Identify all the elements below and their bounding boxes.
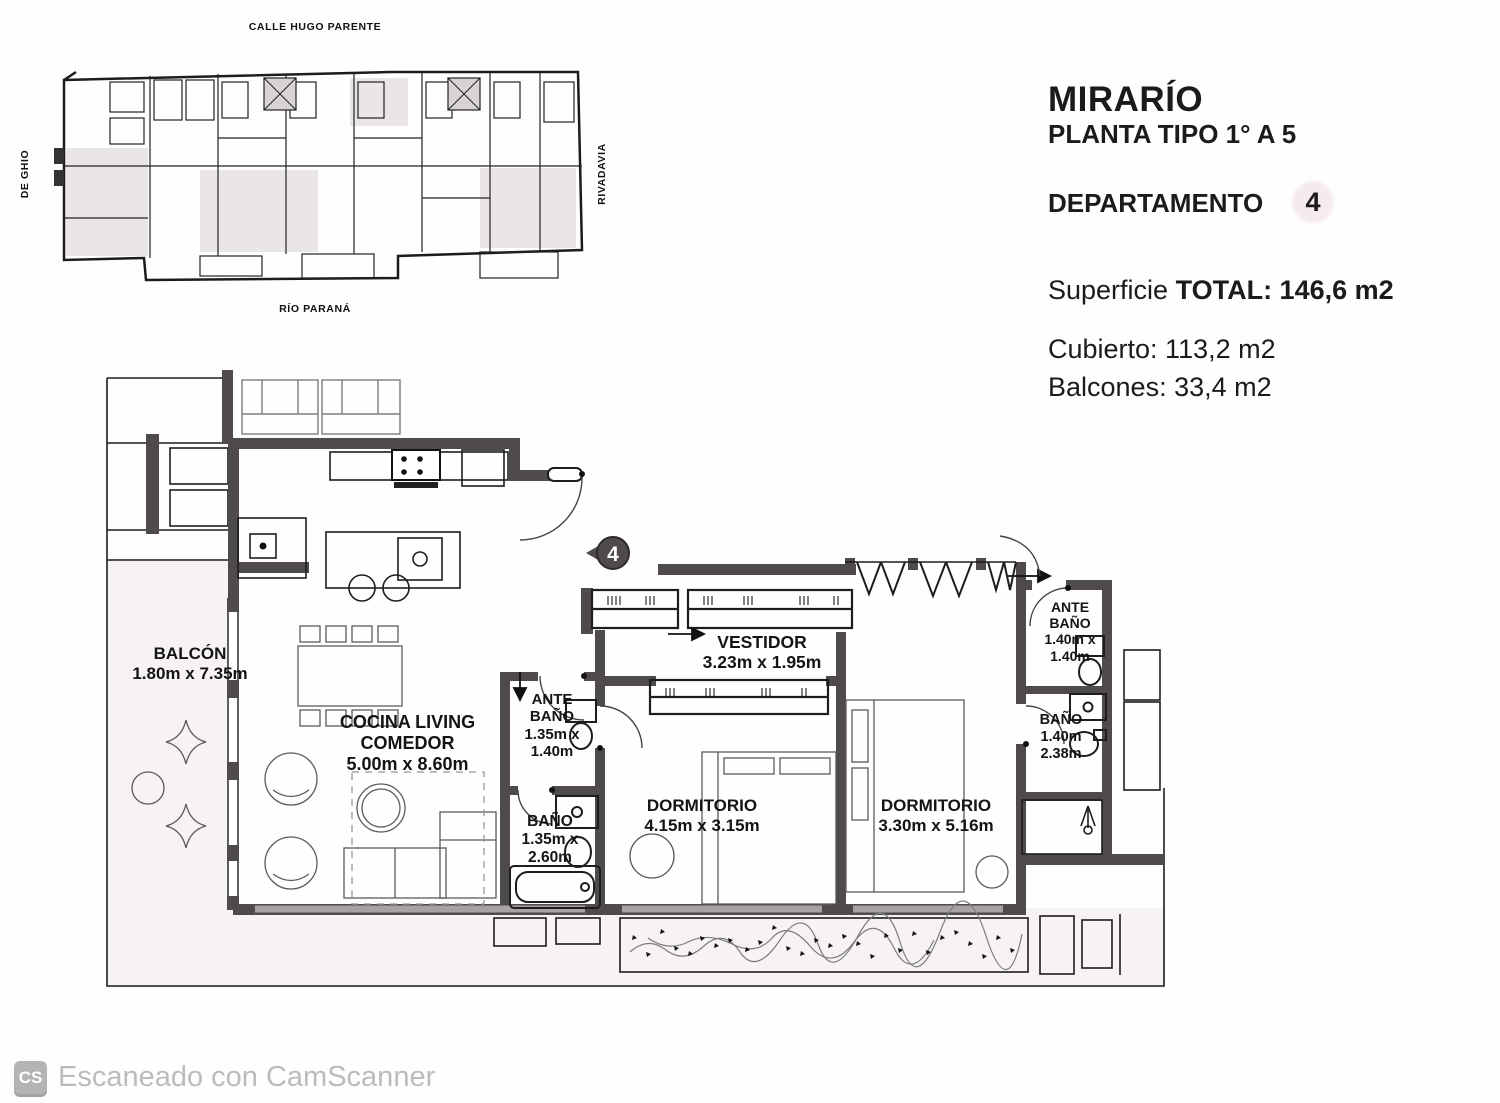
unit-label: DEPARTAMENTO (1048, 188, 1263, 219)
room-name: ANTE (507, 691, 597, 708)
room-name: DORMITORIO (845, 796, 1027, 816)
room-dims: 3.30m x 5.16m (845, 816, 1027, 836)
project-title: MIRARÍO (1048, 80, 1203, 120)
room-dims: 2.60m (505, 849, 595, 867)
room-name: BALCÓN (115, 644, 265, 664)
room-dims: 1.80m x 7.35m (115, 664, 265, 684)
room-dims: 1.40m (1032, 648, 1108, 664)
room-label-ante-bano-1: ANTE BAÑO 1.35m x 1.40m (507, 691, 597, 761)
room-name: ANTE (1032, 599, 1108, 615)
scanned-floor-plan-page: CALLE HUGO PARENTE DE GHIO RIVADAVIA RÍO… (0, 0, 1500, 1103)
area-covered: Cubierto: 113,2 m2 (1048, 334, 1276, 365)
room-dims: 1.40m (507, 743, 597, 760)
street-label-bottom: RÍO PARANÁ (230, 303, 400, 315)
room-name: COMEDOR (310, 733, 505, 754)
room-dims: 1.35m x (507, 726, 597, 743)
room-name: BAÑO (1022, 712, 1100, 729)
site-plan-drawing (50, 18, 650, 333)
room-label-dormitorio-2: DORMITORIO 3.30m x 5.16m (845, 796, 1027, 835)
room-label-dormitorio-1: DORMITORIO 4.15m x 3.15m (612, 796, 792, 835)
room-name: BAÑO (1032, 615, 1108, 631)
camscanner-text: Escaneado con CamScanner (58, 1061, 435, 1094)
room-dims: 3.23m x 1.95m (672, 652, 852, 672)
area-total: Superficie TOTAL: 146,6 m2 (1048, 275, 1394, 306)
area-total-value: TOTAL: 146,6 m2 (1176, 275, 1394, 305)
room-name: DORMITORIO (612, 796, 792, 816)
room-label-balcon: BALCÓN 1.80m x 7.35m (115, 644, 265, 683)
room-label-ante-bano-2: ANTE BAÑO 1.40m x 1.40m (1032, 599, 1108, 664)
unit-number-badge: 4 (1290, 179, 1336, 225)
room-label-vestidor: VESTIDOR 3.23m x 1.95m (672, 632, 852, 673)
room-name: BAÑO (507, 708, 597, 725)
camscanner-watermark: CS Escaneado con CamScanner (14, 1061, 435, 1094)
walls (228, 438, 1164, 915)
room-dims: 1.40m x (1032, 631, 1108, 647)
room-label-bano-2: BAÑO 1.40m 2.38m (1022, 712, 1100, 762)
room-dims: 2.38m (1022, 746, 1100, 763)
street-label-right: RIVADAVIA (596, 119, 608, 229)
room-name: COCINA LIVING (310, 712, 505, 733)
room-label-bano-1: BAÑO 1.35m x 2.60m (505, 813, 595, 867)
room-dims: 5.00m x 8.60m (310, 754, 505, 775)
room-name: VESTIDOR (672, 632, 852, 652)
unit-marker-badge: 4 (586, 537, 629, 569)
street-label-top: CALLE HUGO PARENTE (230, 21, 400, 33)
folding-doors (857, 562, 1016, 596)
room-dims: 1.40m (1022, 729, 1100, 746)
room-label-cocina: COCINA LIVING COMEDOR 5.00m x 8.60m (310, 712, 505, 775)
street-label-left: DE GHIO (19, 119, 31, 229)
camscanner-logo-icon: CS (14, 1061, 47, 1094)
room-name: BAÑO (505, 813, 595, 831)
svg-text:4: 4 (607, 543, 619, 566)
area-total-prefix: Superficie (1048, 275, 1176, 305)
room-dims: 1.35m x (505, 831, 595, 849)
floor-subtitle: PLANTA TIPO 1° A 5 (1048, 119, 1296, 150)
room-dims: 4.15m x 3.15m (612, 816, 792, 836)
stove-icon (392, 450, 440, 488)
